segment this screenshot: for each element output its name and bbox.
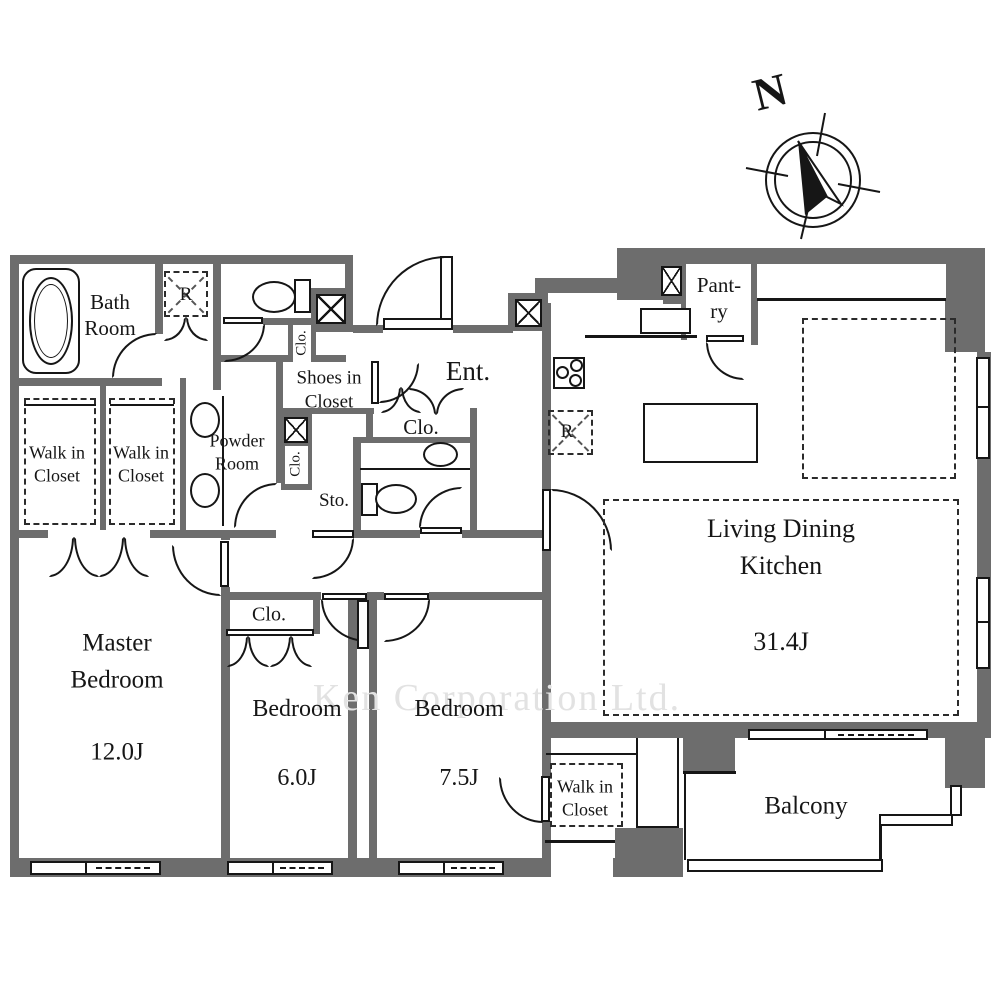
mark-utility-r: R <box>180 283 193 307</box>
window-band <box>757 264 946 301</box>
boundary-line <box>683 771 736 774</box>
bedroom75-area: 7.5J <box>414 761 503 796</box>
wall <box>10 378 162 386</box>
room-label-powder: Powder Room <box>210 430 265 475</box>
toilet-bowl <box>252 281 296 313</box>
room-label-ldk: Living Dining Kitchen 31.4J <box>672 472 891 698</box>
wall <box>10 255 353 264</box>
door-swing <box>164 317 186 341</box>
closet-door-swing <box>227 636 248 667</box>
entrance-threshold <box>383 318 453 330</box>
wall <box>222 592 321 600</box>
door-swing <box>706 342 744 380</box>
door-swing <box>499 777 543 823</box>
room-label-pantry: Pant- ry <box>697 272 741 325</box>
window <box>227 861 333 875</box>
balcony-railing <box>950 785 962 816</box>
counter-line <box>585 335 697 338</box>
wall <box>354 530 420 538</box>
window <box>976 357 990 459</box>
window <box>976 577 990 669</box>
bedroom75-name: Bedroom <box>414 692 503 727</box>
wall <box>263 318 313 325</box>
door-swing <box>436 388 464 415</box>
floor-plan: Ken Corporation Ltd. <box>0 0 1000 1000</box>
wall <box>617 248 985 264</box>
hanger-pipe <box>110 404 174 406</box>
ldk-name: Living Dining Kitchen <box>672 510 891 585</box>
room-label-master: Master Bedroom 12.0J <box>70 589 163 807</box>
wall <box>683 738 735 771</box>
shaft-icon <box>515 299 542 327</box>
mark-fridge-r: R <box>561 420 574 444</box>
wall <box>281 484 312 490</box>
toilet-tank <box>294 279 311 313</box>
door-leaf <box>312 530 354 538</box>
service-notch <box>551 843 613 877</box>
balcony-railing <box>879 814 953 826</box>
ldk-area: 31.4J <box>672 623 891 661</box>
window <box>398 861 504 875</box>
door-swing <box>419 487 462 528</box>
wall <box>221 530 230 540</box>
closet-label: Clo. <box>252 603 286 628</box>
closet-label: Clo. <box>403 414 439 440</box>
hanger-pipe <box>24 404 96 406</box>
closet-label: Clo. <box>288 451 305 476</box>
wall <box>462 530 543 538</box>
wall <box>615 828 683 877</box>
door-leaf <box>706 335 744 342</box>
wall <box>308 446 312 488</box>
wall <box>213 263 221 390</box>
boundary-line <box>545 840 615 843</box>
room-label-wic2: Walk in Closet <box>113 442 169 487</box>
wall <box>313 600 320 634</box>
wall <box>10 530 48 538</box>
kitchen-island <box>643 403 758 463</box>
room-label-wic1: Walk in Closet <box>29 442 85 487</box>
wall <box>150 530 276 538</box>
window <box>30 861 161 875</box>
door-swing <box>186 317 208 341</box>
wall <box>945 737 985 788</box>
room-label-bedroom6: Bedroom 6.0J <box>252 657 341 831</box>
wall <box>316 355 346 362</box>
room-label-bedroom75: Bedroom 7.5J <box>414 657 503 831</box>
shaft-icon <box>661 266 682 296</box>
wall <box>470 408 477 537</box>
sliding-window <box>748 729 928 740</box>
door-swing <box>376 256 446 326</box>
closet-door-swing <box>99 537 124 577</box>
closet-door-swing <box>124 537 149 577</box>
shaft-icon <box>316 294 346 324</box>
wall-slit <box>357 600 369 649</box>
bathtub-inner <box>34 284 68 358</box>
kitchen-sink <box>640 308 691 334</box>
wall <box>429 592 543 600</box>
wall <box>221 587 230 858</box>
door-swing <box>172 545 221 596</box>
door-leaf <box>371 361 379 404</box>
closet-door-swing <box>74 537 99 577</box>
door-leaf <box>542 489 551 551</box>
door-swing <box>408 388 436 415</box>
burner <box>569 374 582 387</box>
furniture-area <box>802 318 956 479</box>
wall <box>155 263 163 334</box>
wall <box>10 255 19 877</box>
sink <box>423 442 458 467</box>
closet-door-leaf <box>226 629 314 636</box>
door-swing <box>381 387 401 413</box>
closet-door-swing <box>49 537 74 577</box>
door-swing <box>312 538 354 579</box>
wall <box>535 278 617 293</box>
sink <box>190 473 220 508</box>
room-label-storage: Sto. <box>319 489 349 513</box>
burner <box>570 359 583 372</box>
shaft-icon <box>284 417 308 443</box>
boundary-line <box>546 753 636 755</box>
wall <box>288 325 293 362</box>
room-label-shoes: Shoes in Closet <box>297 366 362 414</box>
door-leaf <box>220 541 229 587</box>
burner <box>556 366 569 379</box>
wall <box>453 325 513 333</box>
master-name: Master Bedroom <box>70 626 163 699</box>
wall <box>353 325 383 333</box>
bedroom6-area: 6.0J <box>252 761 341 796</box>
boundary-line <box>636 738 638 828</box>
door-swing <box>234 483 277 528</box>
toilet-bowl <box>375 484 417 514</box>
counter-line <box>360 468 470 470</box>
wall <box>100 386 106 530</box>
room-label-balcony: Balcony <box>764 790 847 821</box>
wall <box>281 446 285 488</box>
master-area: 12.0J <box>70 734 163 770</box>
wall <box>353 437 361 532</box>
room-label-bath: Bath Room <box>84 289 135 342</box>
boundary-line <box>677 738 679 828</box>
room-label-wic3: Walk in Closet <box>557 776 613 821</box>
closet-label: Clo. <box>294 330 311 355</box>
bedroom6-name: Bedroom <box>252 692 341 727</box>
wall <box>180 378 186 530</box>
boundary-line <box>636 826 679 828</box>
room-label-entrance: Ent. <box>446 355 490 389</box>
boundary-line <box>684 774 686 860</box>
wall <box>542 303 551 489</box>
door-leaf <box>223 317 263 324</box>
wall <box>369 598 377 858</box>
balcony-railing <box>879 826 882 860</box>
door-swing <box>384 599 430 642</box>
door-leaf <box>420 527 462 534</box>
balcony-railing <box>687 859 883 872</box>
